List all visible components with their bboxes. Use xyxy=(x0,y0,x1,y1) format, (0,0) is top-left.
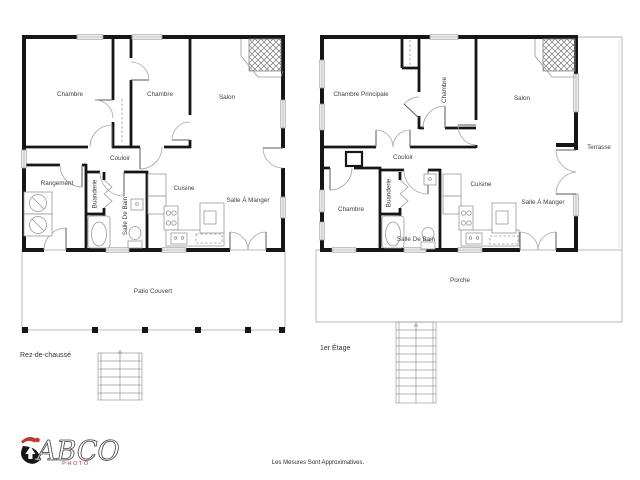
logo-subtext: PHOTO xyxy=(62,461,90,467)
room-label-rangement: Rangement xyxy=(41,180,74,187)
stove-icon xyxy=(459,206,473,230)
bath-sink-icon xyxy=(424,174,436,185)
kitchen-sink-icon xyxy=(171,233,187,244)
kitchen-sink-icon xyxy=(466,233,482,244)
room-label-salon: Salon xyxy=(514,95,531,102)
room-label-salon: Salon xyxy=(219,94,236,101)
room-label-chambre-top: Chambre xyxy=(441,77,448,103)
ground-floor-plan: Chambre Chambre Salon Couloir Rangement … xyxy=(20,35,285,400)
disclaimer-text: Les Mesures Sont Approximatives. xyxy=(272,460,365,466)
room-label-buanderie: Buanderie xyxy=(386,178,393,207)
bathtub-icon xyxy=(382,216,404,248)
stove-icon xyxy=(164,206,178,230)
bathtub-icon xyxy=(88,216,110,248)
counter xyxy=(443,196,461,214)
floor-plan-sheet: Chambre Chambre Salon Couloir Rangement … xyxy=(0,0,640,480)
staircase xyxy=(396,322,436,403)
first-floor-title: 1er Étage xyxy=(320,343,350,352)
room-label-cuisine: Cuisine xyxy=(174,185,195,192)
fridge-icon xyxy=(148,174,166,196)
santa-hat-icon xyxy=(21,437,37,444)
bifold-door-icon xyxy=(104,180,112,208)
room-label-cuisine: Cuisine xyxy=(471,181,492,188)
ground-walls xyxy=(22,35,285,252)
room-label-salle-de-bain: Salle De Bain xyxy=(122,196,129,235)
fireplace-icon xyxy=(535,39,575,77)
room-label-salle-a-manger: Salle À Manger xyxy=(521,197,564,206)
room-label-patio: Patio Couvert xyxy=(134,288,172,295)
room-label-chambre-bottom: Chambre xyxy=(338,206,364,213)
logo: ABCO PHOTO xyxy=(21,436,120,467)
first-windows xyxy=(320,35,578,252)
bath-sink-icon xyxy=(131,199,143,210)
first-doors xyxy=(330,40,576,250)
room-label-porche: Porche xyxy=(450,277,470,284)
first-walls xyxy=(320,35,578,252)
washer-dryer-icon xyxy=(24,192,52,236)
room-label-couloir: Couloir xyxy=(110,155,130,162)
toilet-icon xyxy=(128,227,142,249)
first-floor-plan: Chambre Principale Chambre Salon Terrass… xyxy=(316,35,622,403)
footer: ABCO PHOTO Les Mesures Sont Approximativ… xyxy=(21,436,365,467)
fridge-icon xyxy=(443,174,461,196)
room-label-terrasse: Terrasse xyxy=(587,144,611,151)
ground-floor-title: Rez-de-chaussé xyxy=(20,352,71,359)
room-label-chambre-principale: Chambre Principale xyxy=(333,91,389,98)
room-label-salle-de-bain: Salle De Bain xyxy=(397,236,436,243)
floor-plan-drawing: Chambre Chambre Salon Couloir Rangement … xyxy=(0,0,640,480)
room-label-chambre-mid: Chambre xyxy=(147,91,173,98)
staircase xyxy=(98,351,142,401)
fireplace-icon xyxy=(241,39,283,77)
bifold-door-icon xyxy=(400,180,408,208)
ground-windows xyxy=(22,35,285,252)
room-label-buanderie: Buanderie xyxy=(92,179,99,208)
room-label-couloir: Couloir xyxy=(393,154,413,161)
room-label-salle-a-manger: Salle À Manger xyxy=(226,195,269,204)
hall-closet xyxy=(346,152,362,166)
room-label-chambre-left: Chambre xyxy=(57,91,83,98)
counter xyxy=(148,196,166,214)
porch-deck xyxy=(316,250,622,322)
